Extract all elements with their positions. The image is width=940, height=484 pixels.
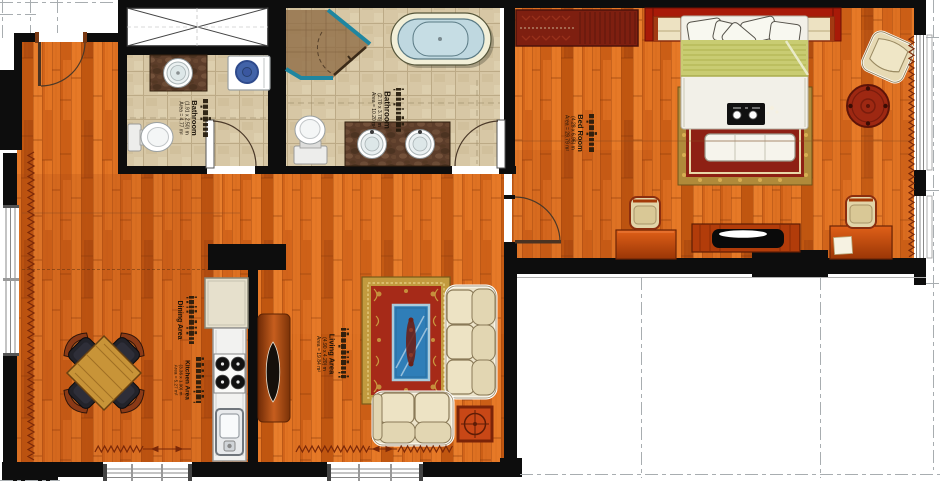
svg-text:Dining Area: Dining Area xyxy=(176,300,183,339)
svg-text:Area = 19.84 m²: Area = 19.84 m² xyxy=(315,336,321,372)
svg-text:Bathroom: Bathroom xyxy=(190,100,199,136)
svg-text:Area = 5.27 m²: Area = 5.27 m² xyxy=(174,365,179,396)
svg-text:Area = 4.77 m²: Area = 4.77 m² xyxy=(178,101,184,135)
svg-text:Kitchen Area: Kitchen Area xyxy=(184,360,191,400)
svg-text:Living Area: Living Area xyxy=(328,334,337,375)
svg-text:Bed Room: Bed Room xyxy=(576,114,585,152)
svg-text:Area = 29.79 m²: Area = 29.79 m² xyxy=(564,115,570,151)
svg-text:Area = 10.20 m²: Area = 10.20 m² xyxy=(370,92,376,128)
svg-text:Bathroom: Bathroom xyxy=(383,91,392,129)
